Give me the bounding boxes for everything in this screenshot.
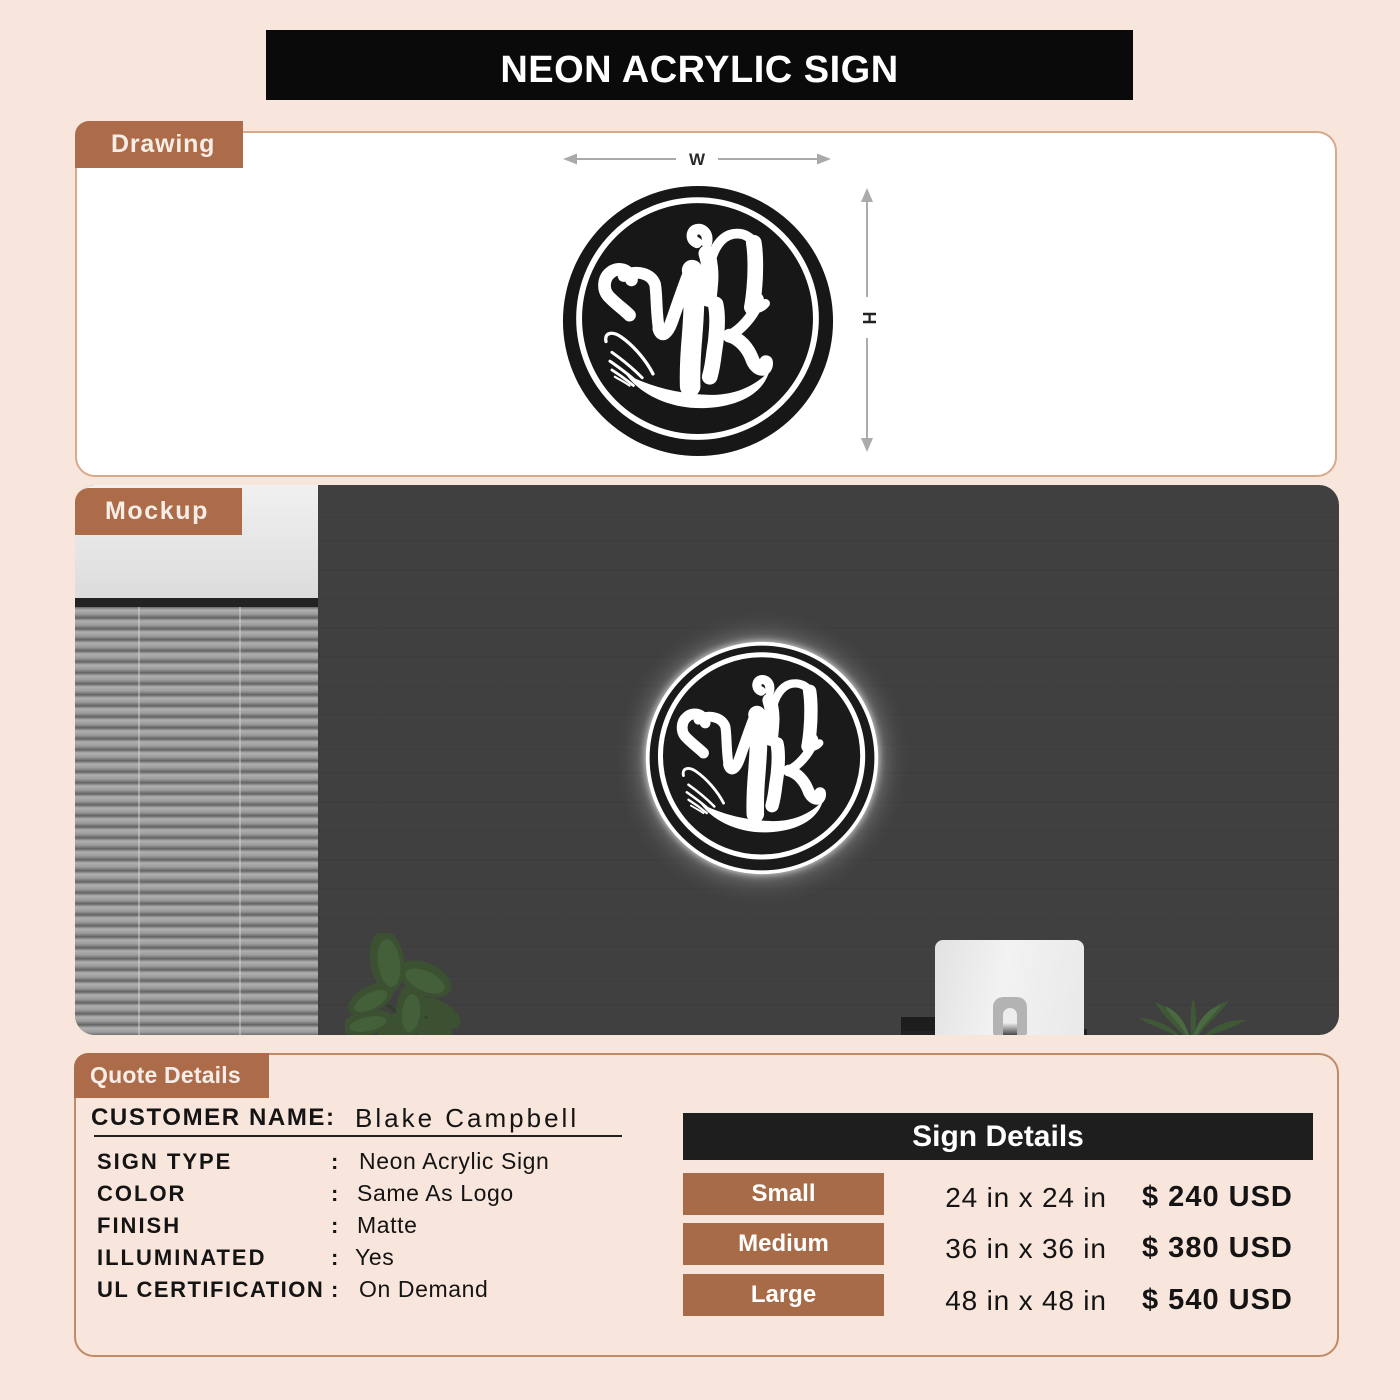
svg-text:W: W (689, 150, 706, 169)
svg-text:H: H (859, 312, 879, 325)
